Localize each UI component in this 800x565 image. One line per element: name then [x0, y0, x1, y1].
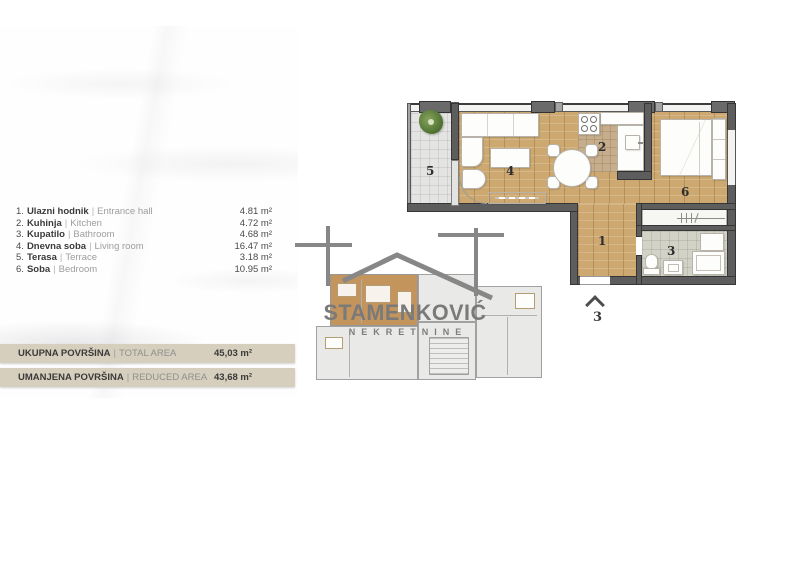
reduced-area-value: 43,68 m² — [214, 372, 252, 383]
bedroom-wardrobe — [712, 118, 726, 180]
room-name-sr: Dnevna soba — [27, 241, 86, 253]
armchair — [462, 169, 486, 189]
room-area: 4.72 m² — [240, 218, 272, 230]
room-area: 10.95 m² — [235, 264, 273, 276]
dining-chair — [585, 144, 598, 157]
room-name-en: Bedroom — [59, 264, 98, 276]
terrace-glass-door — [451, 160, 459, 206]
washing-machine-icon — [700, 233, 724, 251]
room-label-hall: 1 — [598, 234, 606, 248]
separator: | — [92, 206, 94, 218]
room-number: 3. — [16, 229, 24, 241]
burner-icon — [590, 116, 597, 123]
wall-pier — [555, 102, 563, 112]
room-list-item-bathroom: 3. Kupatilo | Bathroom 4.68 m² — [16, 229, 272, 241]
room-number: 2. — [16, 218, 24, 230]
room-number: 5. — [16, 252, 24, 264]
pillow-divider — [699, 122, 700, 175]
total-area-value: 45,03 m² — [214, 348, 252, 359]
miniplan-wall — [349, 331, 350, 377]
toilet-icon — [645, 254, 658, 269]
plant-center — [428, 119, 434, 125]
sofa-chaise — [461, 137, 483, 167]
bathroom-west-wall — [636, 225, 642, 237]
room-name-sr: Terasa — [27, 252, 57, 264]
living-south-wall — [407, 203, 578, 212]
wardrobe-rod — [677, 218, 725, 219]
terrace-partition-wall — [451, 103, 459, 160]
total-area-label-sr: UKUPNA POVRŠINA — [18, 348, 111, 359]
room-list-item-entrance-hall: 1. Ulazni hodnik | Entrance hall 4.81 m² — [16, 206, 272, 218]
room-name-en: Living room — [95, 241, 144, 253]
kitchen-south-wall — [617, 171, 652, 180]
toilet-tank — [643, 268, 660, 275]
separator: | — [127, 372, 129, 383]
room-name-sr: Kupatilo — [27, 229, 65, 241]
room-list-item-terrace: 5. Terasa | Terrace 3.18 m² — [16, 252, 272, 264]
room-number: 4. — [16, 241, 24, 253]
hall-west-wall — [570, 203, 578, 285]
kitchen-counter — [600, 112, 644, 125]
room-name-sr: Soba — [27, 264, 50, 276]
bed — [660, 119, 712, 176]
basin-inner — [668, 264, 679, 272]
burner-icon — [590, 125, 597, 132]
room-label-bedroom: 6 — [681, 185, 689, 199]
room-label-kitchen: 2 — [598, 140, 606, 154]
room-label-bathroom: 3 — [667, 244, 675, 258]
wardrobe-north-wall — [636, 203, 736, 210]
separator: | — [60, 252, 62, 264]
shower-tub — [692, 251, 725, 275]
room-area: 3.18 m² — [240, 252, 272, 264]
separator: | — [65, 218, 67, 230]
washbasin-icon — [663, 260, 683, 275]
wall-pier — [655, 102, 663, 112]
room-label-living: 4 — [506, 164, 514, 178]
brand-subtitle: NEKRETNINE — [312, 327, 498, 337]
room-name-en: Bathroom — [73, 229, 114, 241]
kitchen-bedroom-wall — [644, 103, 652, 180]
room-list-item-kitchen: 2. Kuhinja | Kitchen 4.72 m² — [16, 218, 272, 230]
room-area: 16.47 m² — [235, 241, 273, 253]
room-number: 1. — [16, 206, 24, 218]
stove-icon — [578, 113, 600, 135]
room-name-sr: Kuhinja — [27, 218, 62, 230]
tv-sideboard — [488, 192, 546, 204]
separator: | — [89, 241, 91, 253]
kitchen-sink-icon — [625, 135, 640, 150]
reduced-area-label-sr: UMANJENA POVRŠINA — [18, 372, 124, 383]
room-list-item-bedroom: 6. Soba | Bedroom 10.95 m² — [16, 264, 272, 276]
separator: | — [53, 264, 55, 276]
miniplan-staircase — [429, 337, 469, 375]
room-name-en: Terrace — [65, 252, 97, 264]
total-area-bar: UKUPNA POVRŠINA | TOTAL AREA 45,03 m² — [0, 344, 295, 363]
burner-icon — [581, 125, 588, 132]
total-area-label-en: TOTAL AREA — [119, 348, 176, 359]
room-number: 6. — [16, 264, 24, 276]
hanger-icon — [691, 213, 692, 223]
bathroom-north-wall — [636, 225, 736, 231]
hall-floor — [578, 204, 636, 277]
apartment-floor-plan: 5 4 2 6 1 3 3 — [405, 92, 740, 327]
room-name-sr: Ulazni hodnik — [27, 206, 89, 218]
wardrobe-floor — [642, 209, 727, 226]
hanger-icon — [686, 213, 687, 223]
reduced-area-label-en: REDUCED AREA — [132, 372, 207, 383]
room-name-en: Entrance hall — [97, 206, 152, 218]
entrance-door-opening — [580, 276, 610, 285]
burner-icon — [581, 116, 588, 123]
tub-inner-line — [696, 255, 721, 271]
faucet-icon — [638, 142, 643, 144]
room-list: 1. Ulazni hodnik | Entrance hall 4.81 m²… — [16, 206, 272, 276]
reduced-area-bar: UMANJENA POVRŠINA | REDUCED AREA 43,68 m… — [0, 368, 295, 387]
room-label-terrace: 5 — [426, 164, 434, 178]
room-list-item-living-room: 4. Dnevna soba | Living room 16.47 m² — [16, 241, 272, 253]
miniplan-furniture — [325, 337, 343, 349]
dining-table — [553, 149, 591, 187]
entrance-stair-number: 3 — [593, 310, 602, 325]
room-area: 4.68 m² — [240, 229, 272, 241]
bathroom-west-wall — [636, 255, 642, 285]
bedroom-window — [727, 130, 736, 185]
separator: | — [114, 348, 116, 359]
terrace-railing — [407, 103, 411, 211]
room-name-en: Kitchen — [70, 218, 102, 230]
plant-icon — [419, 110, 443, 134]
room-area: 4.81 m² — [240, 206, 272, 218]
separator: | — [68, 229, 70, 241]
sofa — [461, 113, 539, 137]
hanger-icon — [681, 213, 682, 223]
wall-pier — [531, 101, 555, 113]
